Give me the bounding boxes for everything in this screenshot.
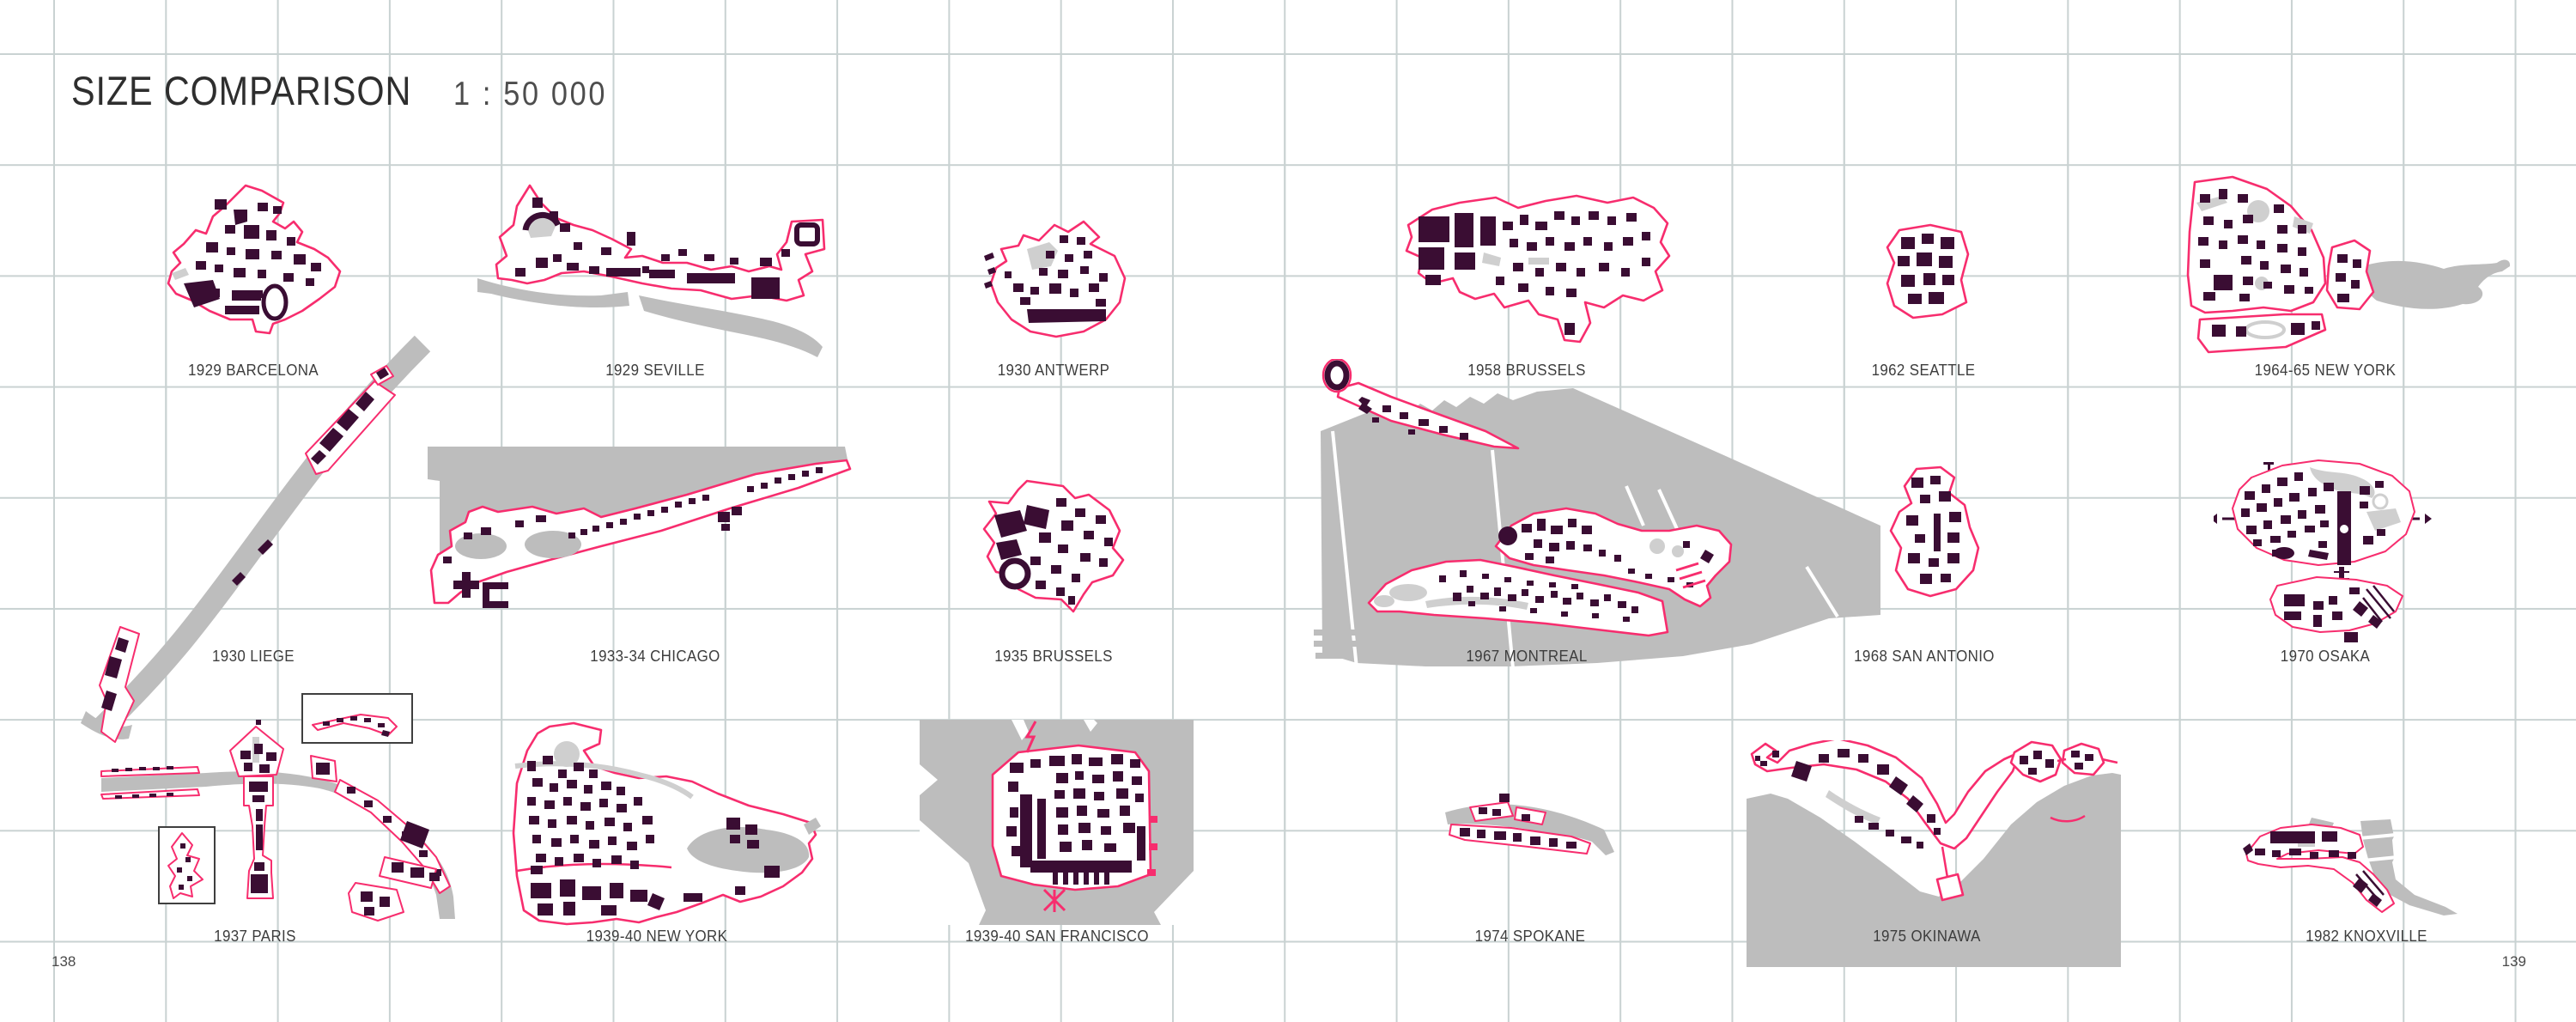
map-label-knoxville: 1982 KNOXVILLE: [2229, 928, 2504, 946]
map-label-brussels58: 1958 BRUSSELS: [1389, 362, 1664, 380]
map-1964-65-new-york: [2166, 170, 2514, 356]
map-label-liege: 1930 LIEGE: [116, 648, 391, 666]
map-label-seville: 1929 SEVILLE: [518, 362, 793, 380]
page-number-right: 139: [2502, 953, 2526, 970]
page-header: SIZE COMPARISON 1 : 50 000: [71, 67, 628, 114]
map-label-chicago: 1933-34 CHICAGO: [518, 648, 793, 666]
map-1939-40-san-francisco: [917, 717, 1196, 928]
map-1970-osaka: [2214, 453, 2439, 651]
map-label-paris: 1937 PARIS: [118, 928, 392, 946]
scale-label: 1 : 50 000: [453, 76, 607, 113]
map-1939-40-new-york: [509, 720, 823, 930]
map-label-spokane: 1974 SPOKANE: [1393, 928, 1668, 946]
map-label-osaka: 1970 OSAKA: [2188, 648, 2463, 666]
page-title: SIZE COMPARISON: [71, 67, 411, 114]
map-1935-brussels: [979, 477, 1129, 623]
map-1929-barcelona: [157, 179, 353, 340]
map-label-antwerp: 1930 ANTWERP: [916, 362, 1191, 380]
map-1937-paris: [93, 689, 483, 942]
map-1967-montreal: [1312, 359, 1883, 670]
map-1930-liege: [60, 333, 447, 750]
map-label-sanfrancisco: 1939-40 SAN FRANCISCO: [920, 928, 1194, 946]
map-label-seattle: 1962 SEATTLE: [1786, 362, 2061, 380]
map-label-montreal: 1967 MONTREAL: [1389, 648, 1664, 666]
map-1930-antwerp: [977, 216, 1136, 341]
map-1982-knoxville: [2239, 811, 2463, 916]
map-label-newyork39: 1939-40 NEW YORK: [519, 928, 794, 946]
map-label-sanantonio: 1968 SAN ANTONIO: [1787, 648, 2062, 666]
map-1974-spokane: [1441, 771, 1617, 866]
map-label-okinawa: 1975 OKINAWA: [1789, 928, 2064, 946]
map-label-brussels35: 1935 BRUSSELS: [916, 648, 1191, 666]
page-number-left: 138: [52, 953, 76, 970]
map-1929-seville: [472, 170, 826, 366]
map-1933-34-chicago: [425, 440, 872, 611]
map-label-barcelona: 1929 BARCELONA: [116, 362, 391, 380]
map-1962-seattle: [1874, 222, 1973, 329]
map-1958-brussels: [1384, 192, 1676, 351]
map-1968-san-antonio: [1874, 464, 1988, 605]
map-label-newyork64: 1964-65 NEW YORK: [2188, 362, 2463, 380]
